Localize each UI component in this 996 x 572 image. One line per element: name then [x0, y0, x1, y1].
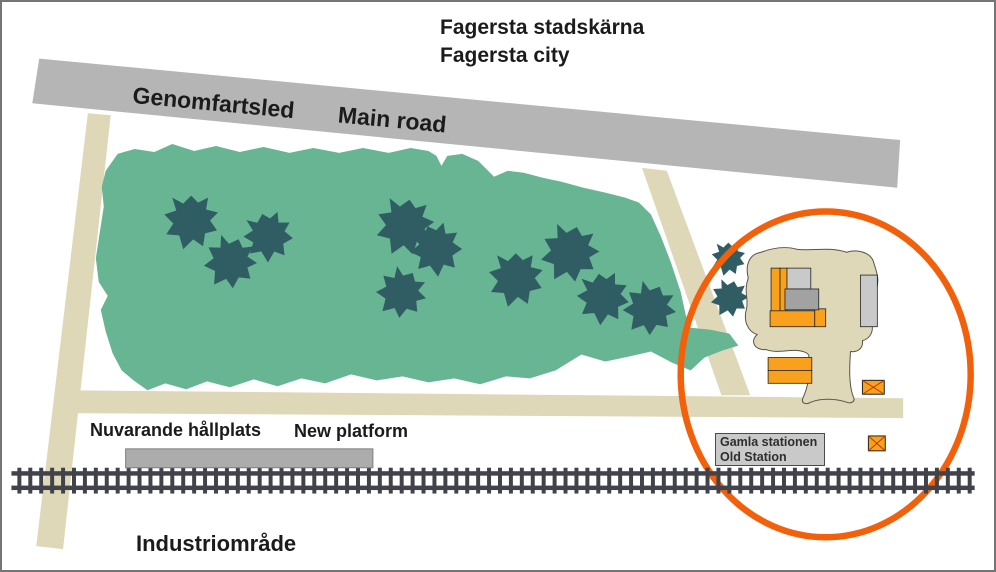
platform-label-sv: Nuvarande hållplats [90, 420, 261, 441]
map-title-line2: Fagersta city [440, 42, 644, 70]
map-frame: Fagersta stadskärna Fagersta city Genomf… [0, 0, 996, 572]
x-marker [862, 380, 884, 394]
railway-track [11, 468, 974, 494]
orange-building [815, 309, 826, 327]
map-title: Fagersta stadskärna Fagersta city [440, 14, 644, 70]
gray-building [787, 268, 811, 289]
x-marker [868, 436, 885, 451]
orange-building [768, 370, 812, 383]
orange-building [771, 268, 780, 312]
map-title-line1: Fagersta stadskärna [440, 14, 644, 42]
industrial-area-label: Industriområde [136, 531, 296, 557]
platform-label-en: New platform [294, 421, 408, 442]
orange-building [770, 311, 815, 327]
forest-area [96, 144, 738, 390]
platform-shape [126, 449, 373, 468]
old-station-label-en: Old Station [720, 450, 820, 465]
gray-building [860, 275, 877, 327]
gray-building [785, 289, 819, 310]
bottom-path-shape [66, 390, 903, 418]
old-station-label-box: Gamla stationen Old Station [715, 433, 825, 466]
old-station-label-sv: Gamla stationen [720, 435, 820, 450]
orange-building [768, 357, 812, 370]
